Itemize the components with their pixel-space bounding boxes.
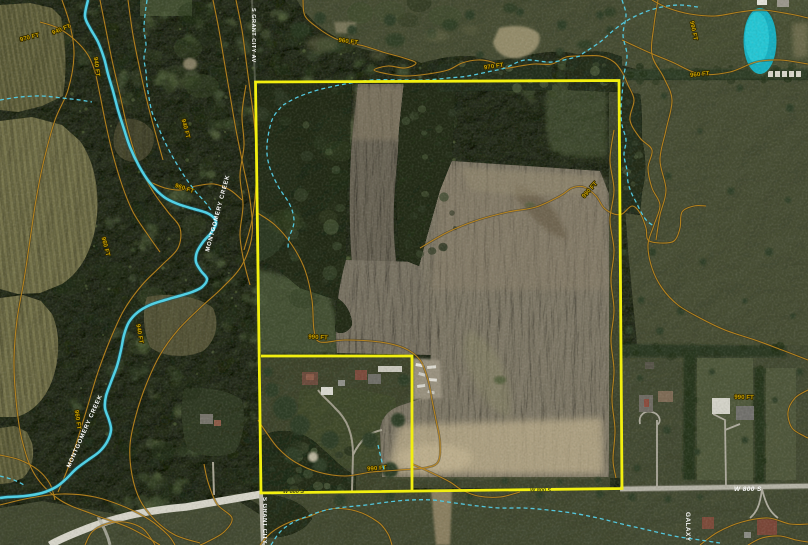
- svg-text:S GRANT CITY AV: S GRANT CITY AV: [261, 497, 267, 545]
- svg-text:W 800 S: W 800 S: [283, 489, 304, 495]
- svg-text:W 800 S: W 800 S: [530, 488, 551, 494]
- svg-text:990 FT: 990 FT: [308, 334, 328, 341]
- svg-text:990 FT: 990 FT: [734, 395, 754, 402]
- svg-text:GALAXY: GALAXY: [684, 512, 691, 542]
- svg-text:W 800 S: W 800 S: [734, 486, 762, 493]
- svg-text:S GRANT CITY AV: S GRANT CITY AV: [250, 8, 256, 63]
